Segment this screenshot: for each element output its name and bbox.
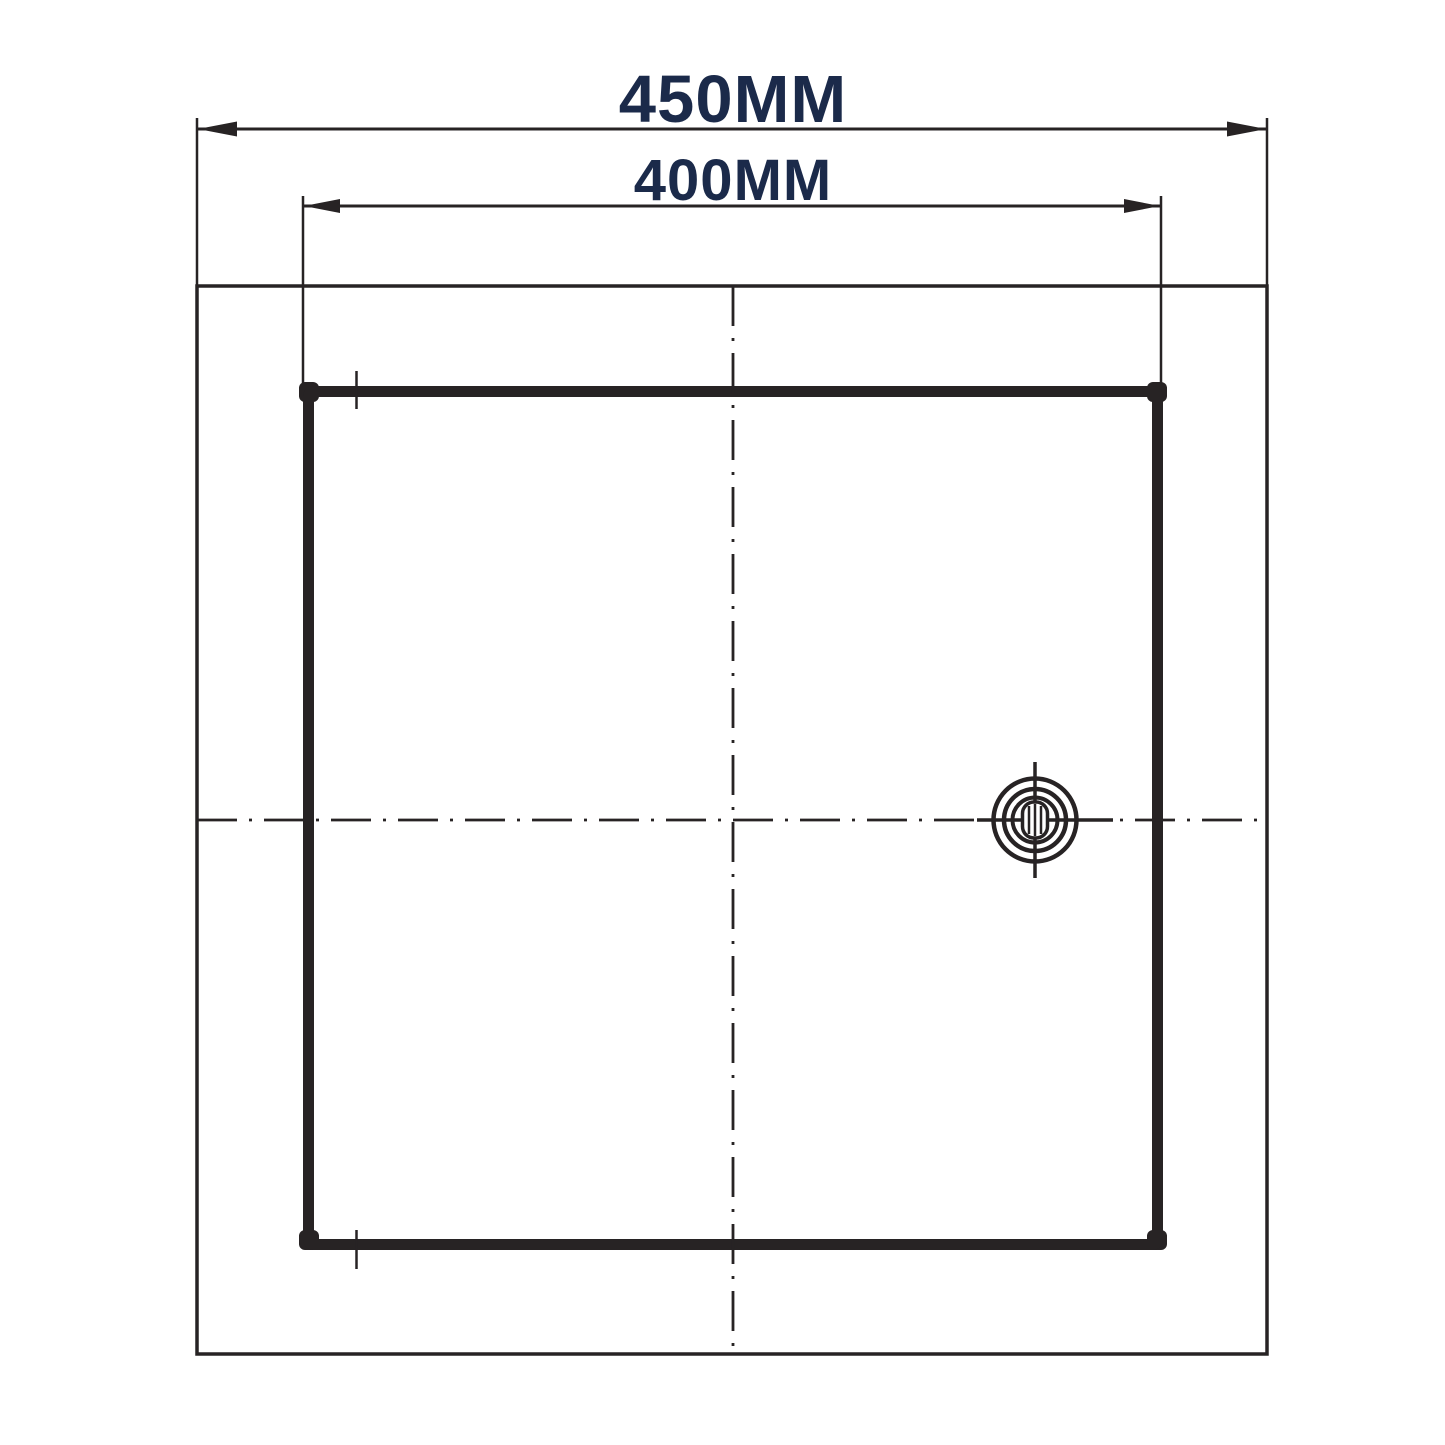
access-panel-drawing: 450MM 400MM <box>0 0 1445 1445</box>
arrow-right-icon <box>1227 122 1266 137</box>
outer-dimension-lines <box>197 118 1267 286</box>
arrow-right-icon <box>1124 199 1160 213</box>
drawing-linework <box>0 0 1445 1445</box>
arrow-left-icon <box>304 199 340 213</box>
arrow-left-icon <box>198 122 237 137</box>
lock-icon <box>977 762 1113 878</box>
